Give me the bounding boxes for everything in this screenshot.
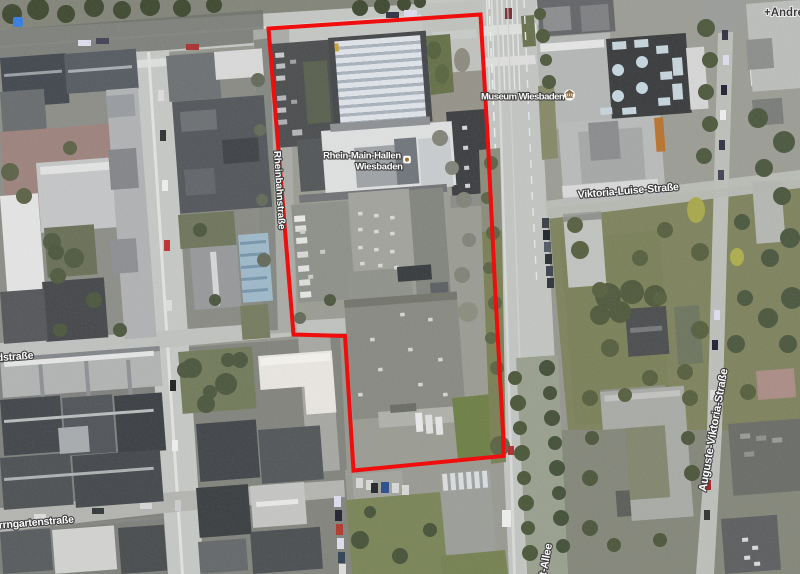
svg-text:Rhein-Main-Hallen: Rhein-Main-Hallen [323,151,401,162]
svg-text:+Andre: +Andre [764,7,800,19]
svg-text:Wiesbaden: Wiesbaden [355,162,403,173]
svg-text:Museum Wiesbaden: Museum Wiesbaden [481,92,565,103]
